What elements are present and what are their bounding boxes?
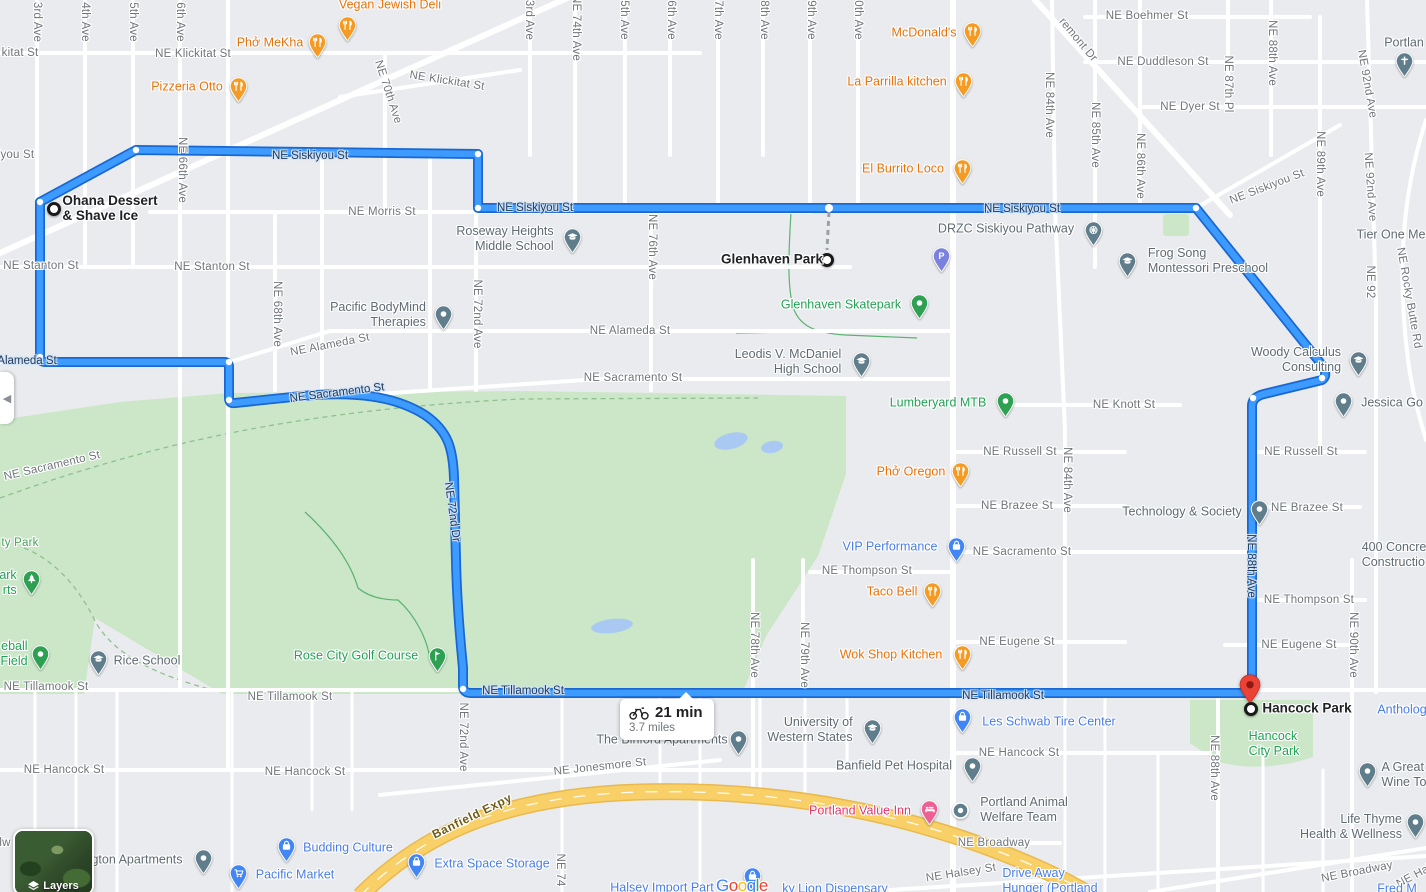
the-binford-apartments-generic-pin-icon[interactable] bbox=[729, 730, 748, 757]
google-logo-letter: o bbox=[729, 876, 738, 892]
street-label-ne-eugene-st: NE Eugene St bbox=[979, 636, 1054, 648]
route-street-label-alameda-st: Alameda St bbox=[0, 355, 57, 367]
route-street-label-ne-siskiyou-st: NE Siskiyou St bbox=[984, 203, 1060, 215]
poi-label-woody-calculus-consulting[interactable]: Woody CalculusConsulting bbox=[1251, 345, 1341, 375]
street-label-ne-87th-pl: NE 87th Pl bbox=[1222, 56, 1234, 113]
street-label-9th-ave: 9th Ave bbox=[805, 0, 817, 40]
poi-label-glenhaven-park[interactable]: Glenhaven Park bbox=[721, 252, 823, 267]
poi-label-la-parrilla-kitchen[interactable]: La Parrilla kitchen bbox=[847, 75, 946, 90]
poi-label-portland-value-inn[interactable]: Portland Value Inn bbox=[809, 804, 911, 819]
street-label-ne-brazee-st: NE Brazee St bbox=[981, 500, 1053, 512]
poi-label-rose-city-golf-course[interactable]: Rose City Golf Course bbox=[294, 649, 418, 664]
poi-label-hancock-park[interactable]: Hancock Park bbox=[1262, 701, 1351, 716]
frog-song-montessori-preschool-school-pin-icon[interactable] bbox=[1118, 252, 1137, 279]
street-label-ne-russell-st: NE Russell St bbox=[983, 446, 1057, 458]
extra-space-storage-bag-pin-icon[interactable] bbox=[407, 853, 426, 880]
poi-label-roseway-heights-middle-school[interactable]: Roseway HeightsMiddle School bbox=[456, 224, 553, 254]
les-schwab-tire-center-bag-pin-icon[interactable] bbox=[953, 708, 972, 735]
street-label-ne-alameda-st: NE Alameda St bbox=[590, 325, 671, 337]
destination-entity-marker[interactable] bbox=[1244, 702, 1258, 716]
portlan-church-pin-icon[interactable] bbox=[1395, 52, 1414, 79]
street-label-ne-tillamook-st: NE Tillamook St bbox=[248, 691, 333, 703]
poi-label-pizzeria-otto[interactable]: Pizzeria Otto bbox=[151, 80, 223, 95]
street-label-ne-stanton-st: NE Stanton St bbox=[174, 261, 249, 273]
route-distance: 3.7 miles bbox=[629, 722, 703, 734]
street-label-ne-russell-st: NE Russell St bbox=[1264, 446, 1338, 458]
layers-icon bbox=[28, 881, 39, 892]
street-label-ne-72nd-ave: NE 72nd Ave bbox=[471, 279, 483, 348]
street-label-ne-knott-st: NE Knott St bbox=[1093, 399, 1155, 411]
poi-label-wok-shop-kitchen[interactable]: Wok Shop Kitchen bbox=[840, 648, 943, 663]
poi-label-jessica-go[interactable]: Jessica Go bbox=[1361, 396, 1423, 411]
poi-label-antholog[interactable]: Antholog bbox=[1377, 703, 1426, 718]
street-label-ne-74th-ave: NE 74th Ave bbox=[570, 0, 582, 61]
poi-label-life-thyme-health-wellness[interactable]: Life ThymeHealth & Wellness bbox=[1300, 812, 1402, 842]
roseway-heights-middle-school-school-pin-icon[interactable] bbox=[563, 228, 582, 255]
street-label-ne-66th-ave: NE 66th Ave bbox=[176, 137, 188, 203]
poi-label-ark-rts[interactable]: arkrts bbox=[0, 568, 17, 598]
vegan-jewish-deli-restaurant-pin-icon[interactable] bbox=[338, 16, 357, 43]
poi-label-portlan[interactable]: Portlan bbox=[1384, 36, 1424, 51]
poi-label-halsey-import-part[interactable]: Halsey Import Part bbox=[610, 881, 714, 892]
poi-label-hancock-city-park[interactable]: HancockCity Park bbox=[1249, 729, 1300, 759]
poi-label-banfield-pet-hospital[interactable]: Banfield Pet Hospital bbox=[836, 759, 952, 774]
poi-label-vip-performance[interactable]: VIP Performance bbox=[843, 540, 938, 555]
street-label-ne-84th-ave: NE 84th Ave bbox=[1043, 72, 1055, 138]
street-label-ne-89th-ave: NE 89th Ave bbox=[1314, 131, 1326, 197]
poi-label-tier-one-me[interactable]: Tier One Me bbox=[1356, 228, 1425, 243]
poi-label-drzc-siskiyou-pathway[interactable]: DRZC Siskiyou Pathway bbox=[938, 222, 1074, 237]
street-label-8th-ave: 8th Ave bbox=[758, 0, 770, 40]
ph-oregon-restaurant-pin-icon[interactable] bbox=[951, 462, 970, 489]
street-label-ne-88th-ave: NE 88th Ave bbox=[1266, 20, 1278, 86]
route-street-label-ne-siskiyou-st: NE Siskiyou St bbox=[272, 150, 348, 162]
street-label-ne-hancock-st: NE Hancock St bbox=[979, 747, 1060, 759]
route-street-label-ne-siskiyou-st: NE Siskiyou St bbox=[497, 202, 573, 214]
taco-bell-restaurant-pin-icon[interactable] bbox=[923, 582, 942, 609]
google-logo[interactable]: Google bbox=[716, 876, 768, 892]
collapse-panel-button[interactable]: ◀ bbox=[0, 372, 14, 424]
rose-city-golf-course-golf-pin-icon[interactable] bbox=[428, 647, 447, 674]
street-label-ne-78th-ave: NE 78th Ave bbox=[748, 612, 760, 678]
poi-label-a-great-wine-to[interactable]: A GreatWine To bbox=[1382, 760, 1426, 790]
google-logo-letter: G bbox=[716, 876, 729, 892]
street-label-ne-76th-ave: NE 76th Ave bbox=[646, 214, 658, 280]
street-label-3rd-ave: 3rd Ave bbox=[523, 0, 535, 40]
street-label-ne-72nd-ave: NE 72nd Ave bbox=[457, 702, 469, 771]
street-label-ne-dyer-st: NE Dyer St bbox=[1160, 101, 1220, 113]
poi-label-ph-mekha[interactable]: Phở MeKha bbox=[237, 36, 304, 51]
route-street-label-ne-tillamook-st: NE Tillamook St bbox=[962, 690, 1044, 702]
bubble-pointer bbox=[678, 692, 694, 700]
poi-label-budding-culture[interactable]: Budding Culture bbox=[303, 841, 393, 856]
poi-label-glenhaven-skatepark[interactable]: Glenhaven Skatepark bbox=[781, 298, 901, 313]
poi-label-portland-animal-welfare-team[interactable]: Portland AnimalWelfare Team bbox=[980, 795, 1068, 825]
street-label-ne-thompson-st: NE Thompson St bbox=[1264, 594, 1354, 606]
street-label-ne-duddleson-st: NE Duddleson St bbox=[1117, 56, 1208, 68]
route-duration: 21 min bbox=[655, 704, 703, 721]
google-logo-letter: o bbox=[738, 876, 747, 892]
svg-text:P: P bbox=[938, 251, 944, 261]
street-label-ty-park: ty Park bbox=[1, 537, 38, 549]
street-label-5th-ave: 5th Ave bbox=[127, 2, 139, 42]
banfield-pet-hospital-generic-pin-icon[interactable] bbox=[963, 757, 982, 784]
street-label-ne-68th-ave: NE 68th Ave bbox=[271, 281, 283, 347]
layers-label: Layers bbox=[43, 880, 78, 892]
street-label-0th-ave: 0th Ave bbox=[852, 0, 864, 40]
google-logo-letter: e bbox=[759, 876, 768, 892]
poi-label-rice-school[interactable]: Rice School bbox=[114, 654, 181, 669]
university-of-western-states-school-pin-icon[interactable] bbox=[863, 719, 882, 746]
route-street-label-ne-tillamook-st: NE Tillamook St bbox=[482, 685, 564, 697]
woody-calculus-consulting-school-pin-icon[interactable] bbox=[1349, 351, 1368, 378]
map-canvas[interactable]: 21 min 3.7 miles ◀ Layers Google 3rd Ave… bbox=[0, 0, 1426, 892]
street-label-ne-klickitat-st: NE Klickitat St bbox=[155, 48, 231, 60]
la-parrilla-kitchen-restaurant-pin-icon[interactable] bbox=[954, 72, 973, 99]
route-info-bubble[interactable]: 21 min 3.7 miles bbox=[620, 699, 714, 740]
street-label-ne-stanton-st: NE Stanton St bbox=[3, 260, 78, 272]
street-label-6th-ave: 6th Ave bbox=[174, 2, 186, 42]
drzc-siskiyou-pathway-dharma-pin-icon[interactable] bbox=[1084, 221, 1103, 248]
street-label-ne-hancock-st: NE Hancock St bbox=[24, 764, 105, 776]
street-label-ne-hancock-st: NE Hancock St bbox=[265, 766, 346, 778]
street-label-3rd-ave: 3rd Ave bbox=[31, 2, 43, 42]
poi-label-400-concre-constructio[interactable]: 400 ConcreConstructio bbox=[1362, 540, 1426, 570]
street-label-kitat-st: kitat St bbox=[2, 47, 39, 59]
destination-pin[interactable] bbox=[1239, 674, 1261, 703]
rice-school-school-pin-icon[interactable] bbox=[89, 650, 108, 677]
unnamed-parking-pin-icon[interactable]: P bbox=[932, 247, 951, 274]
poi-label-frog-song-montessori-preschool[interactable]: Frog SongMontessori Preschool bbox=[1148, 246, 1268, 276]
street-label-ne-92: NE 92 bbox=[1364, 266, 1376, 299]
wok-shop-kitchen-restaurant-pin-icon[interactable] bbox=[953, 645, 972, 672]
vip-performance-bag-pin-icon[interactable] bbox=[947, 537, 966, 564]
pacific-bodymind-therapies-generic-pin-icon[interactable] bbox=[434, 305, 453, 332]
el-burrito-loco-restaurant-pin-icon[interactable] bbox=[953, 159, 972, 186]
poi-label-taco-bell[interactable]: Taco Bell bbox=[867, 585, 918, 600]
poi-label-gton-apartments[interactable]: gton Apartments bbox=[91, 853, 182, 868]
chevron-left-icon: ◀ bbox=[3, 392, 11, 405]
street-label-ne-90th-ave: NE 90th Ave bbox=[1347, 612, 1359, 678]
technology-society-generic-pin-icon[interactable] bbox=[1250, 500, 1269, 527]
street-label-6th-ave: 6th Ave bbox=[665, 0, 677, 40]
street-label-ne-thompson-st: NE Thompson St bbox=[822, 565, 912, 577]
poi-label-les-schwab-tire-center[interactable]: Les Schwab Tire Center bbox=[982, 715, 1115, 730]
bicycle-icon bbox=[629, 706, 649, 720]
poi-label-pacific-bodymind-therapies[interactable]: Pacific BodyMindTherapies bbox=[330, 300, 426, 330]
poi-label-university-of-western-states[interactable]: University ofWestern States bbox=[767, 715, 852, 745]
leodis-v-mcdaniel-high-school-school-pin-icon[interactable] bbox=[852, 352, 871, 379]
poi-label-lumberyard-mtb[interactable]: Lumberyard MTB bbox=[890, 396, 987, 411]
poi-label-el-burrito-loco[interactable]: El Burrito Loco bbox=[862, 162, 944, 177]
green-patch bbox=[1163, 214, 1189, 236]
google-logo-letter: g bbox=[747, 876, 756, 892]
mcdonald-s-restaurant-pin-icon[interactable] bbox=[963, 22, 982, 49]
street-label-ne-brazee-st: NE Brazee St bbox=[1271, 502, 1343, 514]
gton-apartments-generic-pin-icon[interactable] bbox=[194, 849, 213, 876]
street-label-ne-eugene-st: NE Eugene St bbox=[1261, 639, 1336, 651]
eball-field-generic-pin-icon[interactable] bbox=[31, 645, 50, 672]
street-label-ne-morris-st: NE Morris St bbox=[348, 206, 416, 218]
street-label-ne-sacramento-st: NE Sacramento St bbox=[973, 546, 1071, 558]
street-label-ne-85th-ave: NE 85th Ave bbox=[1089, 102, 1101, 168]
poi-label-vegan-jewish-deli[interactable]: Vegan Jewish Deli bbox=[339, 0, 441, 13]
pizzeria-otto-restaurant-pin-icon[interactable] bbox=[229, 77, 248, 104]
street-label-ne-broadway: NE Broadway bbox=[958, 837, 1031, 849]
poi-label-ky-lion-dispensary[interactable]: ky Lion Dispensary bbox=[782, 882, 888, 892]
poi-label-fred-m[interactable]: Fred M bbox=[1377, 882, 1417, 892]
poi-label-mcdonald-s[interactable]: McDonald's bbox=[892, 26, 957, 41]
portland-value-inn-bed-pin-icon[interactable] bbox=[920, 800, 939, 827]
ark-rts-tree-pin-icon[interactable] bbox=[22, 570, 41, 597]
street-label-5th-ave: 5th Ave bbox=[618, 0, 630, 40]
street-label-7th-ave: 7th Ave bbox=[712, 0, 724, 40]
ph-mekha-restaurant-pin-icon[interactable] bbox=[308, 33, 327, 60]
poi-label-eball-field[interactable]: eballField bbox=[0, 639, 27, 669]
street-label-ne-boehmer-st: NE Boehmer St bbox=[1106, 10, 1189, 22]
street-label-ne-79th-ave: NE 79th Ave bbox=[798, 622, 810, 688]
layers-control[interactable]: Layers bbox=[13, 829, 94, 892]
route-street-label-ne-88th-ave: NE 88th Ave bbox=[1245, 534, 1257, 598]
poi-label-pacific-market[interactable]: Pacific Market bbox=[256, 868, 335, 883]
street-label-ne-74: NE 74 bbox=[554, 854, 566, 887]
street-label-lw: lw bbox=[0, 837, 11, 849]
poi-label-extra-space-storage[interactable]: Extra Space Storage bbox=[434, 857, 549, 872]
poi-label-leodis-v-mcdaniel-high-school[interactable]: Leodis V. McDanielHigh School bbox=[735, 347, 842, 377]
poi-label-drive-away-hunger-portland[interactable]: Drive AwayHunger (Portland bbox=[1002, 866, 1097, 892]
poi-label-ohana-dessert-shave-ice[interactable]: Ohana Dessert& Shave Ice bbox=[62, 193, 157, 223]
poi-label-ph-oregon[interactable]: Phở Oregon bbox=[877, 465, 946, 480]
start-marker[interactable] bbox=[47, 202, 61, 216]
pacific-market-cart-pin-icon[interactable] bbox=[229, 864, 248, 891]
glenhaven-skatepark-generic-pin-icon[interactable] bbox=[910, 294, 929, 321]
street-label-4th-ave: 4th Ave bbox=[79, 2, 91, 42]
jessica-go-generic-pin-icon[interactable] bbox=[1334, 392, 1353, 419]
street-label-ne-sacramento-st: NE Sacramento St bbox=[584, 372, 682, 384]
street-label-ne-88th-ave: NE 88th Ave bbox=[1208, 735, 1220, 801]
lumberyard-mtb-generic-pin-icon[interactable] bbox=[996, 392, 1015, 419]
portland-animal-welfare-team-circledot-pin-icon[interactable] bbox=[952, 802, 969, 819]
street-label-ne-tillamook-st: NE Tillamook St bbox=[4, 681, 89, 693]
a-great-wine-to-generic-pin-icon[interactable] bbox=[1358, 762, 1377, 789]
street-label-ne-86th-ave: NE 86th Ave bbox=[1134, 133, 1146, 199]
street-label-iyou-st: iyou St bbox=[0, 149, 34, 161]
poi-label-technology-society[interactable]: Technology & Society bbox=[1122, 505, 1242, 520]
life-thyme-health-wellness-generic-pin-icon[interactable] bbox=[1406, 813, 1425, 840]
budding-culture-bag-pin-icon[interactable] bbox=[277, 837, 296, 864]
street-label-ne-84th-ave: NE 84th Ave bbox=[1061, 447, 1073, 513]
